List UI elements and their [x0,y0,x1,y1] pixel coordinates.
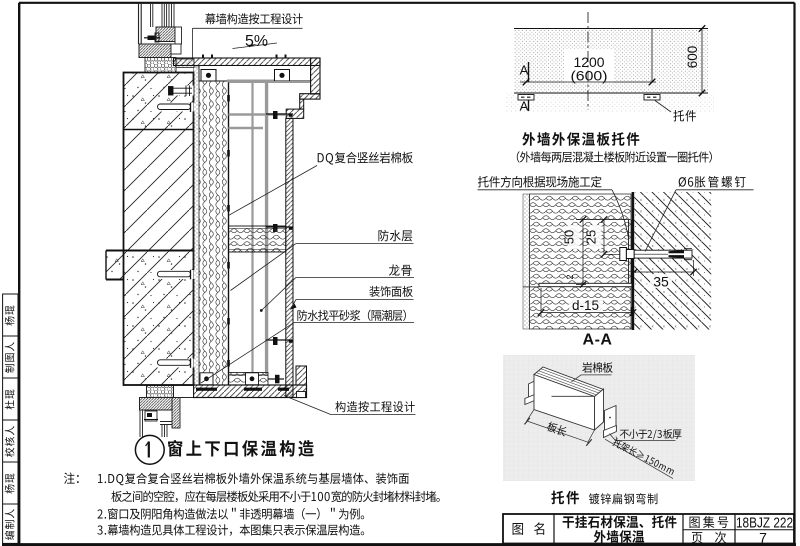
svg-text:7: 7 [759,530,767,546]
svg-text:A-A: A-A [583,332,613,349]
svg-text:50: 50 [562,230,577,244]
svg-text:A: A [520,63,529,78]
svg-text:600: 600 [685,46,700,69]
svg-text:2: 2 [565,274,575,279]
svg-text:35: 35 [653,274,669,290]
svg-text:25: 25 [584,230,599,244]
svg-text:5%: 5% [245,33,268,50]
svg-text:d-15: d-15 [572,298,599,313]
svg-text:(600): (600) [571,68,608,84]
svg-text:A: A [520,99,529,114]
